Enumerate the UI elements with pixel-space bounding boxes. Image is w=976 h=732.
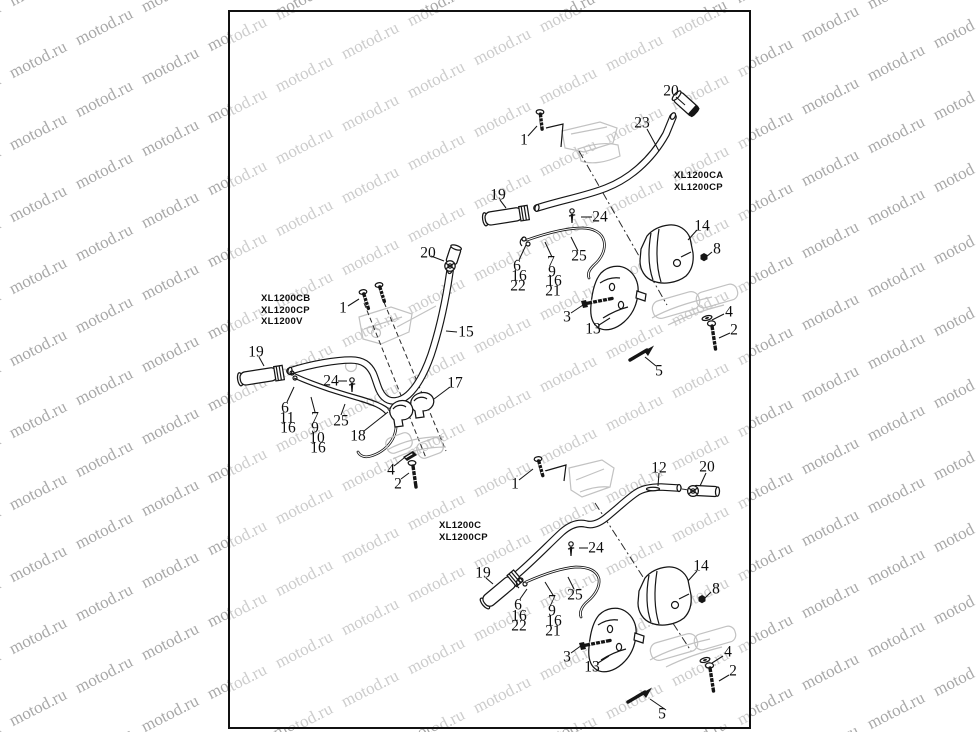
part-callout-16: 16 xyxy=(310,441,326,456)
part-callout-21: 21 xyxy=(545,624,561,639)
handlebar-23 xyxy=(537,117,673,208)
part-callout-8: 8 xyxy=(713,242,721,257)
pin-24-top xyxy=(569,209,575,223)
part-callout-1: 1 xyxy=(511,477,519,492)
part-callout-23: 23 xyxy=(634,116,650,131)
model-label-top-handlebar-assembly: XL1200CAXL1200CP xyxy=(674,170,723,193)
model-label-middle-handlebar-assembly: XL1200CBXL1200CPXL1200V xyxy=(261,293,310,328)
part-callout-24: 24 xyxy=(588,541,604,556)
part-callout-2: 2 xyxy=(394,477,402,492)
part-callout-5: 5 xyxy=(655,364,663,379)
part-callout-18: 18 xyxy=(350,429,366,444)
part-callout-13: 13 xyxy=(584,660,600,675)
model-line: XL1200C xyxy=(439,520,488,532)
part-callout-5: 5 xyxy=(658,707,666,722)
parts-diagram-page: motod.rumotod.rumotod.rumotod.rumotod.ru… xyxy=(0,0,976,732)
handlebar-12 xyxy=(514,487,678,577)
part-callout-17: 17 xyxy=(447,376,463,391)
clamp-18 xyxy=(390,400,413,427)
part-callout-20: 20 xyxy=(699,460,715,475)
part-callout-19: 19 xyxy=(475,566,491,581)
part-callout-22: 22 xyxy=(511,619,527,634)
screw-1b-middle xyxy=(375,282,387,302)
assembly-middle xyxy=(237,244,462,487)
part-callout-1: 1 xyxy=(520,133,528,148)
part-callout-4: 4 xyxy=(724,645,732,660)
screw-2-middle xyxy=(408,461,418,487)
diagram-artwork xyxy=(0,0,976,732)
part-callout-13: 13 xyxy=(585,322,601,337)
part-callout-25: 25 xyxy=(567,588,583,603)
assembly-bottom xyxy=(478,456,737,710)
model-line: XL1200CP xyxy=(261,305,310,317)
part-callout-25: 25 xyxy=(333,414,349,429)
part-callout-19: 19 xyxy=(490,188,506,203)
screw-1-bottom xyxy=(534,456,546,476)
part-callout-3: 3 xyxy=(563,650,571,665)
part-callout-2: 2 xyxy=(730,323,738,338)
model-line: XL1200CP xyxy=(674,182,723,194)
part-callout-12: 12 xyxy=(651,461,667,476)
pin-24-middle xyxy=(349,378,355,392)
part-callout-16: 16 xyxy=(280,421,296,436)
part-callout-20: 20 xyxy=(420,246,436,261)
grip-end-20-middle xyxy=(445,244,462,271)
cable-25-bottom xyxy=(526,567,599,617)
model-label-bottom-handlebar-assembly: XL1200CXL1200CP xyxy=(439,520,488,543)
phantom-clamp-top xyxy=(562,122,620,163)
part-callout-24: 24 xyxy=(323,374,339,389)
part-callout-25: 25 xyxy=(571,249,587,264)
model-line: XL1200CB xyxy=(261,293,310,305)
part-callout-24: 24 xyxy=(592,210,608,225)
part-callout-20: 20 xyxy=(663,84,679,99)
part-callout-4: 4 xyxy=(725,305,733,320)
grip-19-middle xyxy=(237,365,285,386)
part-callout-21: 21 xyxy=(545,284,561,299)
part-callout-2: 2 xyxy=(729,664,737,679)
part-callout-14: 14 xyxy=(693,559,709,574)
grip-end-20-bottom xyxy=(688,485,720,496)
part-callout-8: 8 xyxy=(712,582,720,597)
model-line: XL1200CA xyxy=(674,170,723,182)
model-line: XL1200V xyxy=(261,316,310,328)
part-callout-22: 22 xyxy=(510,279,526,294)
phantom-clamp-bottom xyxy=(569,460,614,497)
part-callout-15: 15 xyxy=(458,325,474,340)
grip-19-top xyxy=(482,205,530,226)
cable-b xyxy=(294,378,386,414)
model-line: XL1200CP xyxy=(439,532,488,544)
part-callout-19: 19 xyxy=(248,345,264,360)
part-callout-1: 1 xyxy=(339,301,347,316)
part-callout-14: 14 xyxy=(694,219,710,234)
part-callout-3: 3 xyxy=(563,310,571,325)
cable-25-top xyxy=(527,228,604,278)
pin-24-bottom xyxy=(568,542,574,556)
